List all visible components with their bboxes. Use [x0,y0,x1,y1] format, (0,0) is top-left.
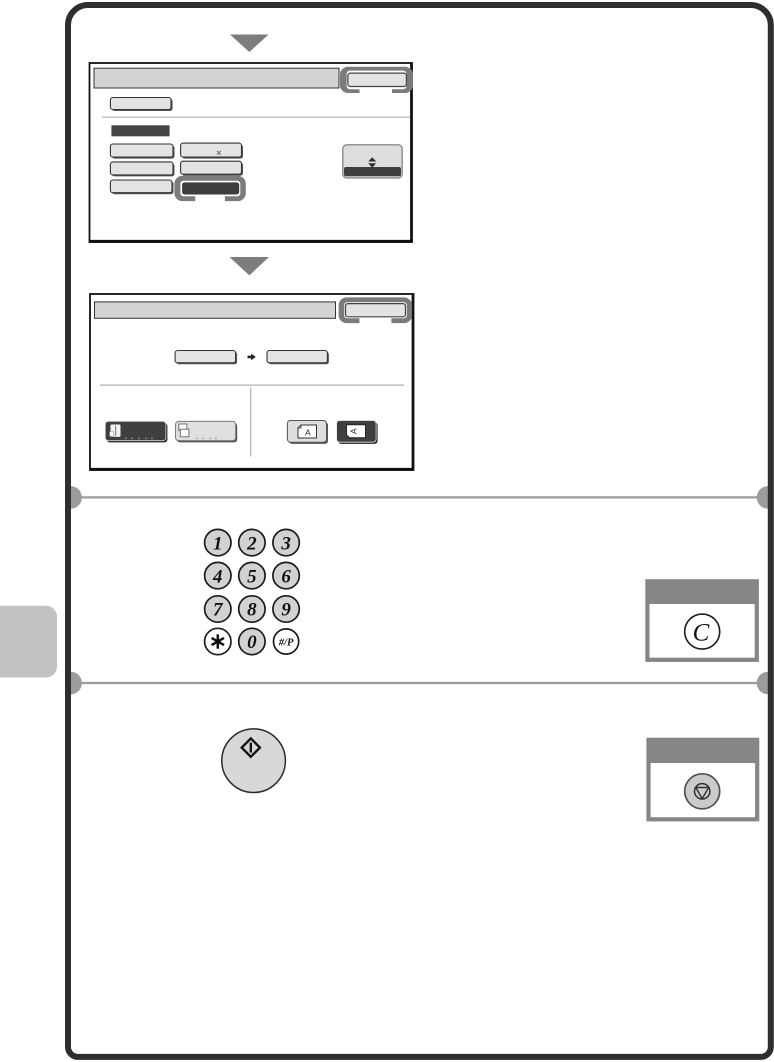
svg-text:9: 9 [281,600,291,621]
svg-text:6: 6 [281,566,291,587]
svg-text:4: 4 [212,566,223,587]
svg-text:#/P: #/P [278,638,294,649]
svg-text:3: 3 [280,533,291,554]
svg-text:A: A [349,428,359,434]
svg-text:5: 5 [247,566,257,587]
svg-text:A: A [305,428,311,438]
svg-text:2: 2 [246,533,257,554]
svg-text:0: 0 [247,632,257,653]
svg-text:C: C [693,619,710,646]
svg-text:8: 8 [247,600,257,621]
svg-text:7: 7 [213,600,224,621]
svg-text:1: 1 [213,533,223,554]
